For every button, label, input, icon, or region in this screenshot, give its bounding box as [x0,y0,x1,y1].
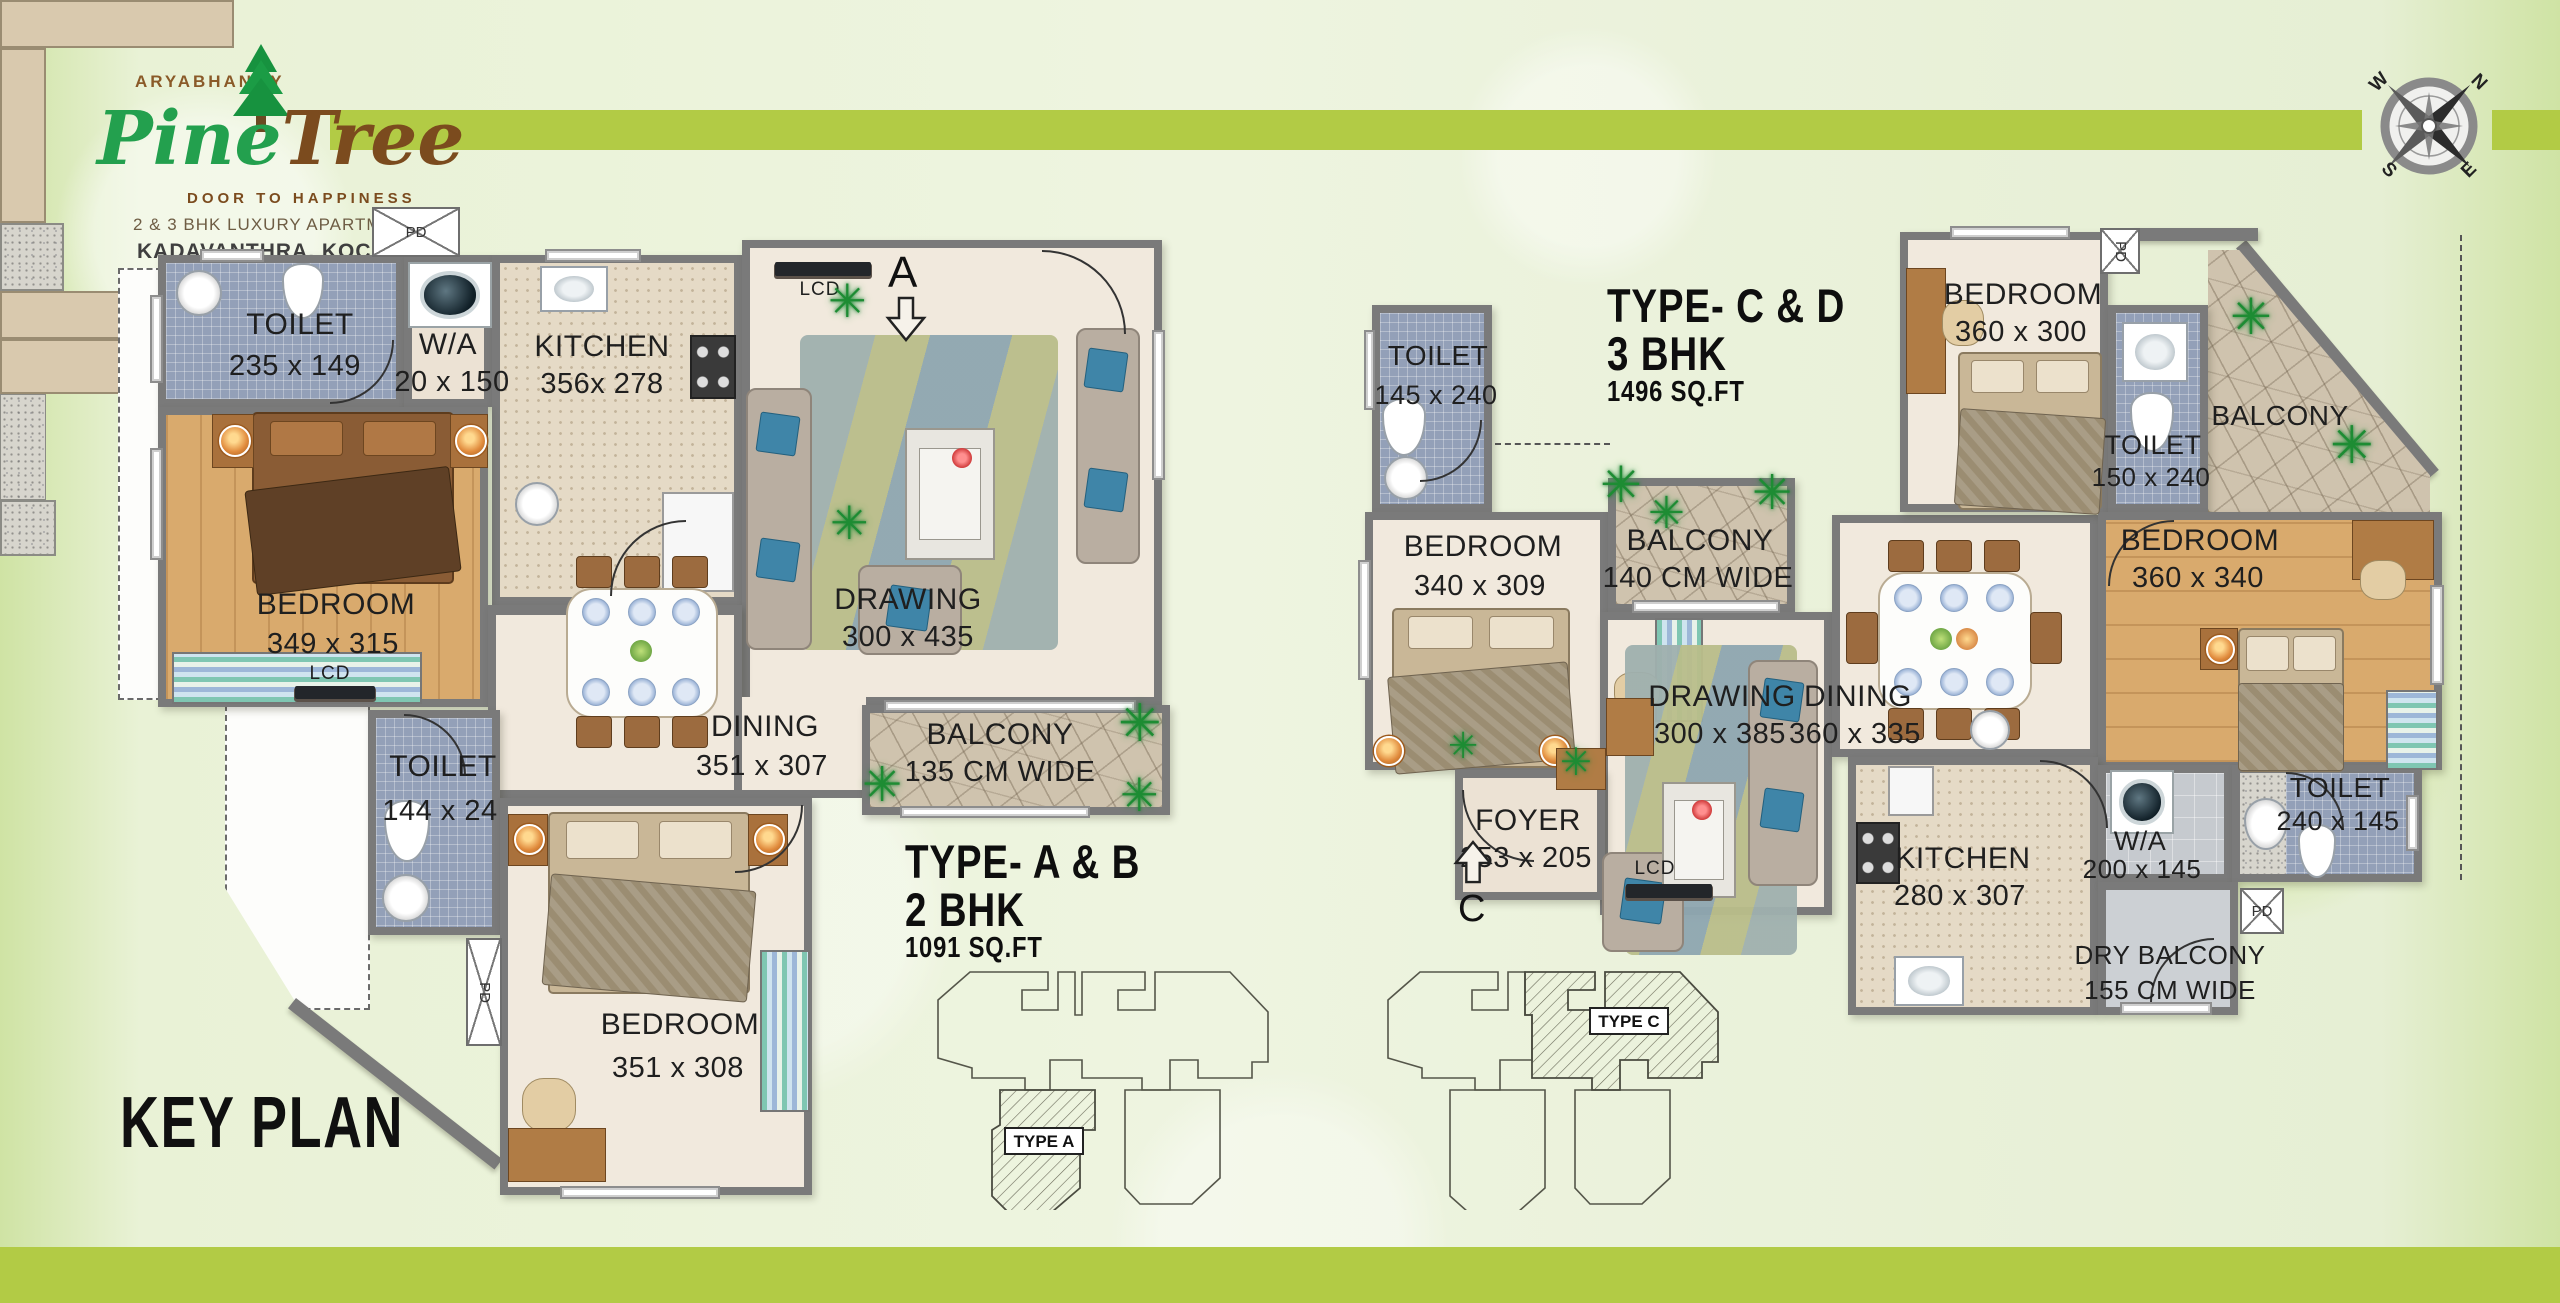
shaft-label: PD [2252,903,2273,920]
floor-plan-poster: ARYABHANGY PineTree DOOR TO HAPPINESS 2 … [0,0,2560,1303]
label-bedroom1-a-name: BEDROOM [226,588,446,622]
kitchen-sink-icon [540,266,608,312]
wash-basin-icon [515,482,559,526]
plant-icon: ✳ [1560,744,1592,782]
chair-icon [1984,540,2020,572]
wash-counter [0,500,56,556]
label-dining-a-name: DINING [655,710,875,744]
entrance-c-arrow-icon [1452,840,1494,884]
chair-icon [576,556,612,588]
label-dining-cd-name: DINING [1748,680,1968,714]
window [900,806,1090,818]
plant-icon: ✳ [830,500,869,546]
label-bedroom2-a-name: BEDROOM [570,1008,790,1042]
plant-icon: ✳ [2330,420,2374,472]
nightstand [2200,628,2238,670]
label-bedroom2-cd-dims: 360 x 300 [1911,316,2131,349]
label-dining-a-dims: 351 x 307 [652,750,872,783]
label-kitchen-a-dims: 356x 278 [492,368,712,401]
plan-cd-type: TYPE- C & D [1607,282,1845,330]
label-foyer-cd-name: FOYER [1418,804,1638,838]
window [884,700,1136,712]
label-lcd-drawing-cd: LCD [1565,858,1745,880]
chair-icon [2360,560,2406,600]
flower-decor [952,448,972,468]
window [200,249,264,262]
entrance-a-letter: A [888,248,917,298]
key-plan-type-c-label: TYPE C [1598,1012,1659,1031]
chair-icon [1936,540,1972,572]
chair-icon [1888,540,1924,572]
window [150,448,163,560]
key-plan-diagram-type-c: TYPE C [1380,960,1780,1210]
wardrobe-icon [2386,690,2438,770]
window [545,249,641,262]
window [1152,330,1165,480]
label-balcony1-cd-dims: 140 CM WIDE [1588,562,1808,595]
chair-icon [1846,612,1878,664]
label-balcony-a-dims: 135 CM WIDE [890,756,1110,789]
bed-icon [252,412,454,584]
wash-basin-icon [1970,710,2010,750]
label-bedroom1-cd-dims: 340 x 309 [1370,570,1590,603]
label-toilet2-a-name: TOILET [333,750,553,784]
label-toilet1-cd-dims: 145 x 240 [1326,380,1546,411]
label-kitchen-a-name: KITCHEN [492,330,712,364]
granite-counter [0,394,46,500]
tv-lcd-icon [1626,884,1712,898]
label-drawing-a-name: DRAWING [798,583,1018,617]
label-drawing-a-dims: 300 x 435 [798,621,1018,654]
label-lcd-drawing-a: LCD [730,279,910,301]
label-wa-cd-name: W/A [2030,826,2250,857]
plant-icon: ✳ [1600,460,1642,510]
plan-cd-area: 1496 SQ.FT [1607,378,1845,408]
window [2430,585,2444,685]
window [1950,226,2070,239]
bed-icon [548,812,750,994]
label-bedroom1-cd-name: BEDROOM [1373,530,1593,564]
plant-icon: ✳ [1448,728,1478,764]
shaft-label: PD [2112,241,2129,262]
washing-machine-icon [408,262,492,328]
kitchen-counter [0,0,234,48]
plant-icon: ✳ [828,278,867,324]
top-accent-bar [330,110,2362,150]
shaft-label: PD [476,982,493,1003]
lamp-icon [1374,736,1404,766]
compass-rose-icon: W N S E [2363,60,2495,192]
entrance-a-arrow-icon [884,296,928,342]
label-balcony1-cd-name: BALCONY [1590,524,1810,558]
label-dining-cd-dims: 360 x 335 [1745,718,1965,751]
bottom-accent-bar [0,1247,2560,1303]
logo-tagline: DOOR TO HAPPINESS [187,190,416,207]
compass-north: N [2467,70,2492,95]
window [1632,600,1780,613]
label-toilet2-a-dims: 144 x 24 [330,795,550,828]
plant-icon: ✳ [1120,772,1159,818]
label-bedroom2-cd-name: BEDROOM [1913,278,2133,312]
bed-icon [2238,628,2344,772]
label-bedroom3-cd-name: BEDROOM [2090,524,2310,558]
label-toilet2-cd-dims: 150 x 240 [2046,462,2256,493]
chair-icon [576,716,612,748]
wash-counter [0,223,64,291]
shaft-label: PD [406,224,427,241]
nightstand [450,414,488,468]
key-plan-diagram-type-a: TYPE A [930,960,1330,1210]
toilet-sink-icon [382,874,430,922]
window [560,1186,720,1199]
sofa-icon [1076,328,1140,564]
plan-a-type: TYPE- A & B [905,838,1140,886]
window [150,295,163,383]
washing-machine-icon [2110,770,2174,834]
label-bedroom1-a-dims: 349 x 315 [223,628,443,661]
plan-a-heading: TYPE- A & B 2 BHK 1091 SQ.FT [905,838,1140,963]
tv-lcd-icon [295,686,375,699]
plant-icon: ✳ [1648,492,1685,536]
plan-a-shaft-pd-bottom: PD [466,938,502,1046]
plan-cd-top-wall [2130,228,2258,241]
tv-lcd-icon [775,262,871,276]
compass-west: W [2365,68,2393,96]
plant-icon: ✳ [2230,292,2272,342]
label-drybalcony-cd-name: DRY BALCONY [2060,940,2280,971]
desk-icon [508,1128,606,1182]
logo-wordmark: PineTree [97,102,464,176]
plan-a-bhk: 2 BHK [905,886,1140,934]
flower-decor [1692,800,1712,820]
label-bedroom2-a-dims: 351 x 308 [568,1052,788,1085]
entrance-c-letter: C [1458,888,1485,931]
kitchen-counter-side [0,48,46,223]
plan-cd-heading: TYPE- C & D 3 BHK 1496 SQ.FT [1607,282,1845,407]
coffee-table-icon [905,428,995,560]
kitchen-appliance [1888,766,1934,816]
dining-table-icon [566,588,718,718]
chair-icon [522,1078,576,1132]
key-plan-title: KEY PLAN [120,1082,404,1164]
plan-a-shaft-pd-top: PD [372,207,460,257]
plan-cd-dashed-line [1495,443,1610,445]
label-toilet1-cd-name: TOILET [1328,340,1548,372]
nightstand [212,414,254,468]
label-wa-cd-dims: 200 x 145 [2032,854,2252,885]
plan-cd-shaft-pd-bottom: PD [2240,888,2284,934]
kitchen-sink-icon [1894,956,1964,1006]
key-plan-type-a-label: TYPE A [1014,1132,1075,1151]
chair-icon [2030,612,2062,664]
plan-cd-bhk: 3 BHK [1607,330,1845,378]
plant-icon: ✳ [1118,698,1162,750]
label-drybalcony-cd-dims: 155 CM WIDE [2060,975,2280,1006]
toilet-sink-icon [2122,322,2188,382]
plant-icon: ✳ [862,762,902,810]
plan-cd-shaft-pd-top: PD [2100,228,2140,274]
label-lcd-bedroom1-a: LCD [240,663,420,685]
label-balcony-a-name: BALCONY [890,718,1110,752]
label-bedroom3-cd-dims: 360 x 340 [2088,562,2308,595]
label-toilet3-cd-dims: 240 x 145 [2228,806,2448,837]
plant-icon: ✳ [1752,470,1792,518]
top-accent-bar-right [2492,110,2560,150]
label-toilet3-cd-name: TOILET [2230,772,2450,804]
plan-cd-property-dashed-line [2460,235,2462,880]
label-toilet2-cd-name: TOILET [2048,430,2258,461]
